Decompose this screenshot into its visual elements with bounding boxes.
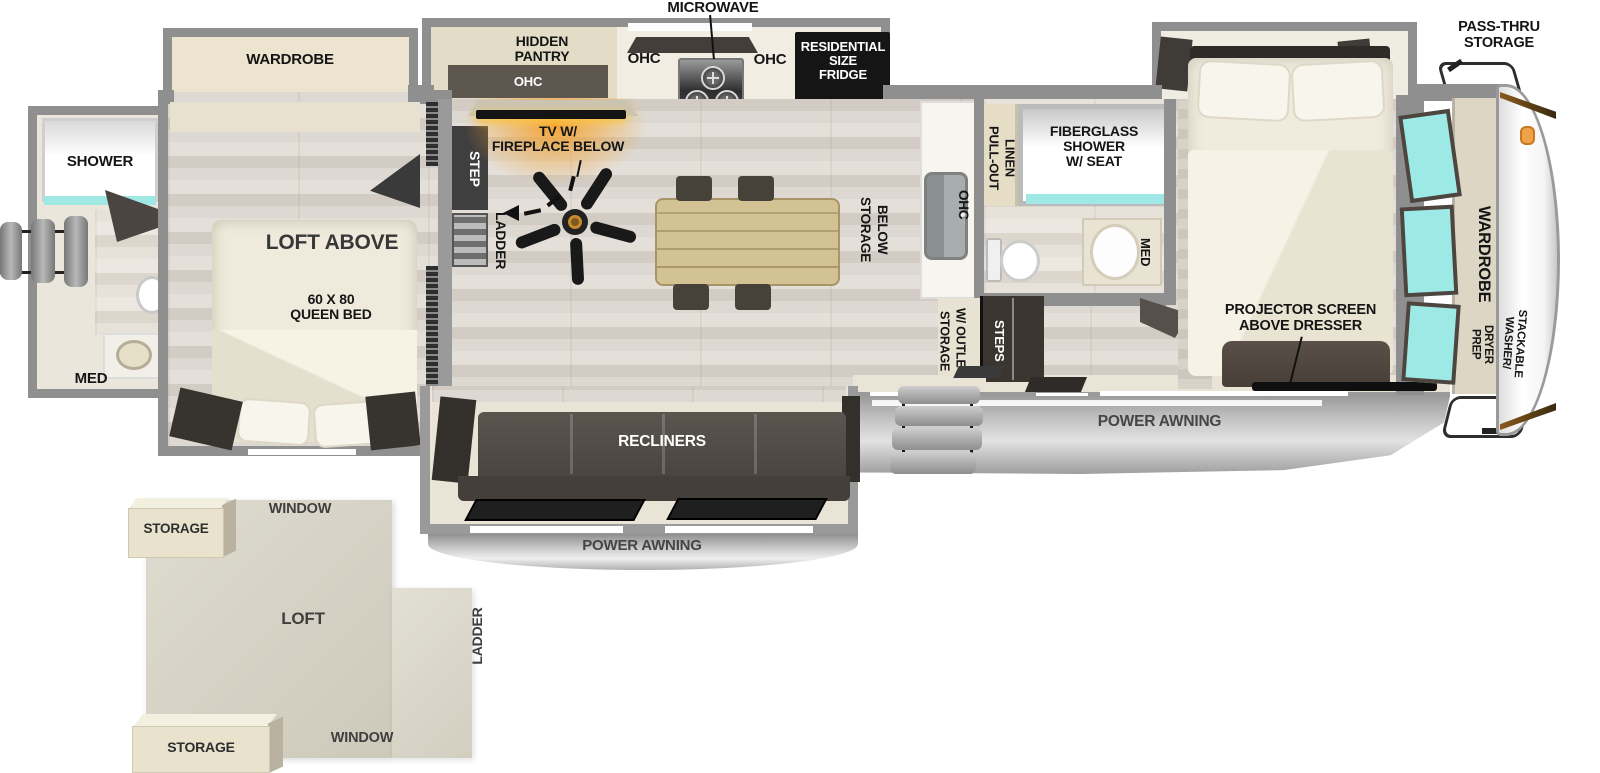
rear-ladder-rung: [64, 216, 88, 287]
entry-step: [898, 386, 980, 404]
pillow: [237, 398, 312, 447]
microwave-label: MICROWAVE: [643, 0, 783, 16]
hidden-pantry-label: HIDDEN PANTRY: [492, 34, 592, 64]
loft-storage-box-side: [222, 499, 236, 558]
rear-med-label: MED: [64, 371, 118, 387]
fan-hub-light: [568, 215, 582, 229]
front-toilet: [1000, 240, 1040, 282]
loft-storage-box2-side: [268, 717, 283, 773]
kitchen-slit-window: [628, 23, 752, 31]
bath-med-label: MED: [1130, 226, 1152, 278]
recliners-slide-floor: [432, 386, 846, 402]
power-awning-rear-label: POWER AWNING: [552, 538, 732, 554]
awning-slit: [665, 526, 813, 533]
storage-below-label: STORAGE BELOW: [856, 180, 898, 280]
fan-blade: [570, 238, 584, 286]
fridge-label: RESIDENTIAL SIZE FRIDGE: [797, 40, 889, 82]
rear-sink: [116, 340, 152, 370]
dining-chair: [676, 176, 712, 201]
recliner-divider: [754, 414, 757, 474]
rear-bedroom-window: [365, 392, 420, 451]
entry-step: [892, 428, 982, 450]
queen-bed-label: 60 X 80 QUEEN BED: [266, 292, 396, 322]
door-threshold: [1025, 377, 1087, 392]
divider-wall: [438, 99, 452, 389]
steps-label: STEPS: [984, 310, 1006, 372]
front-window: [1401, 301, 1460, 385]
interior-ladder: [452, 213, 488, 267]
pillow: [1291, 60, 1386, 123]
ohc-right-label: OHC: [748, 52, 792, 68]
fan-arrow-head: [503, 205, 519, 221]
rear-shower-label: SHOWER: [56, 154, 144, 170]
rear-closet-depth: [170, 102, 420, 132]
entry-step: [895, 406, 983, 426]
pillow: [1197, 60, 1292, 123]
recliners-label: RECLINERS: [592, 434, 732, 451]
loft-window-bottom-label: WINDOW: [303, 731, 421, 747]
loft-storage-top-label: STORAGE: [130, 522, 222, 537]
floorplan-diagram: WARDROBE OHC HIDDEN PANTRY OHC OHC MICRO…: [0, 0, 1600, 773]
loft-storage-bottom-label: STORAGE: [140, 740, 262, 755]
recliner-divider: [570, 414, 573, 474]
dryer-prep-label: DRYER PREP: [1472, 308, 1494, 380]
loft-above-label: LOFT ABOVE: [243, 232, 421, 255]
front-wardrobe-label: WARDROBE: [1464, 192, 1492, 316]
loft-ladder-label: LADDER: [470, 596, 490, 676]
dining-table: [655, 198, 840, 286]
loft-label: LOFT: [268, 610, 338, 628]
front-window: [1400, 205, 1459, 298]
entry-step: [890, 452, 976, 474]
burner: [701, 66, 725, 90]
ohc-shelf-label: OHC: [500, 75, 556, 89]
cap-marker-light: [1520, 126, 1535, 145]
power-awning-door-label: POWER AWNING: [1042, 414, 1277, 431]
rear-ladder-rung: [31, 219, 55, 283]
tv-bar: [476, 110, 626, 119]
rear-ladder-rung: [0, 222, 22, 280]
rear-wardrobe-label: WARDROBE: [210, 52, 370, 68]
footrest-mat: [666, 498, 828, 520]
awning-slit: [470, 526, 623, 533]
dining-chair: [738, 176, 774, 201]
projector-screen-bar: [1252, 382, 1437, 391]
pass-thru-storage-label: PASS-THRU STORAGE: [1435, 20, 1563, 51]
island-ohc-label: OHC: [948, 182, 970, 228]
ohc-left-label: OHC: [622, 51, 666, 67]
dining-chair: [673, 284, 709, 310]
rear-bedroom-sill: [248, 449, 356, 455]
pull-out-linen-label: PULL-OUT LINEN: [985, 110, 1021, 206]
fiberglass-shower-label: FIBERGLASS SHOWER W/ SEAT: [1026, 124, 1162, 169]
dining-chair: [735, 284, 771, 310]
dresser: [1222, 341, 1390, 387]
entry-mat: [953, 366, 1005, 378]
footrest-mat: [464, 499, 646, 521]
front-shower-threshold: [1026, 194, 1164, 204]
tv-fireplace-label: TV W/ FIREPLACE BELOW: [470, 124, 646, 154]
bath-bedroom-wall: [1164, 99, 1176, 305]
projector-label: PROJECTOR SCREEN ABOVE DRESSER: [1198, 303, 1403, 334]
loft-window-top-label: WINDOW: [247, 502, 353, 518]
interior-steps-divider: [1012, 298, 1014, 380]
